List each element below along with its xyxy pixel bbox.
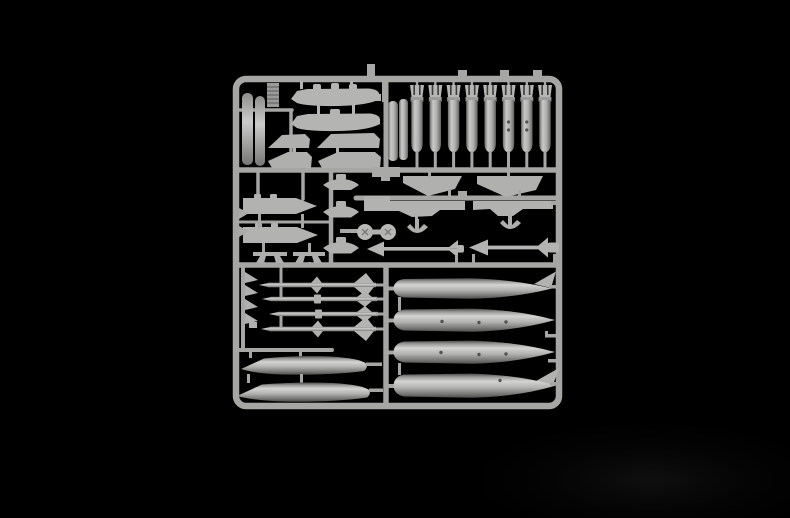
gate (428, 169, 431, 177)
slender-pylon-half-1 (242, 93, 253, 165)
tab (458, 70, 467, 78)
gate (247, 374, 250, 383)
gate (280, 316, 283, 327)
gate (280, 267, 283, 283)
gate (507, 169, 510, 177)
gate (398, 297, 401, 311)
gate (280, 287, 283, 297)
gate (518, 190, 521, 198)
gate (549, 285, 558, 289)
gate (550, 382, 559, 386)
gate (553, 254, 556, 265)
gate (548, 359, 559, 363)
gate (448, 189, 451, 198)
gate (382, 82, 385, 102)
gate (249, 350, 252, 358)
tab (500, 70, 509, 78)
gate (545, 334, 558, 338)
gate (472, 254, 475, 265)
gate (398, 363, 401, 375)
sprue-photo (0, 0, 790, 518)
slender-pylon-half-2 (255, 96, 265, 166)
tab (458, 191, 467, 197)
gate (551, 201, 560, 205)
tab (367, 64, 375, 78)
tab (533, 70, 542, 78)
small-block (249, 322, 257, 328)
gate (455, 255, 458, 265)
gate (300, 374, 303, 383)
gate (369, 389, 383, 393)
vertical-pod-half-2 (399, 99, 408, 160)
gate (366, 363, 382, 367)
louvered-grille-block (267, 83, 279, 107)
photo-stage (0, 0, 790, 518)
vertical-pod-half-1 (388, 101, 398, 161)
